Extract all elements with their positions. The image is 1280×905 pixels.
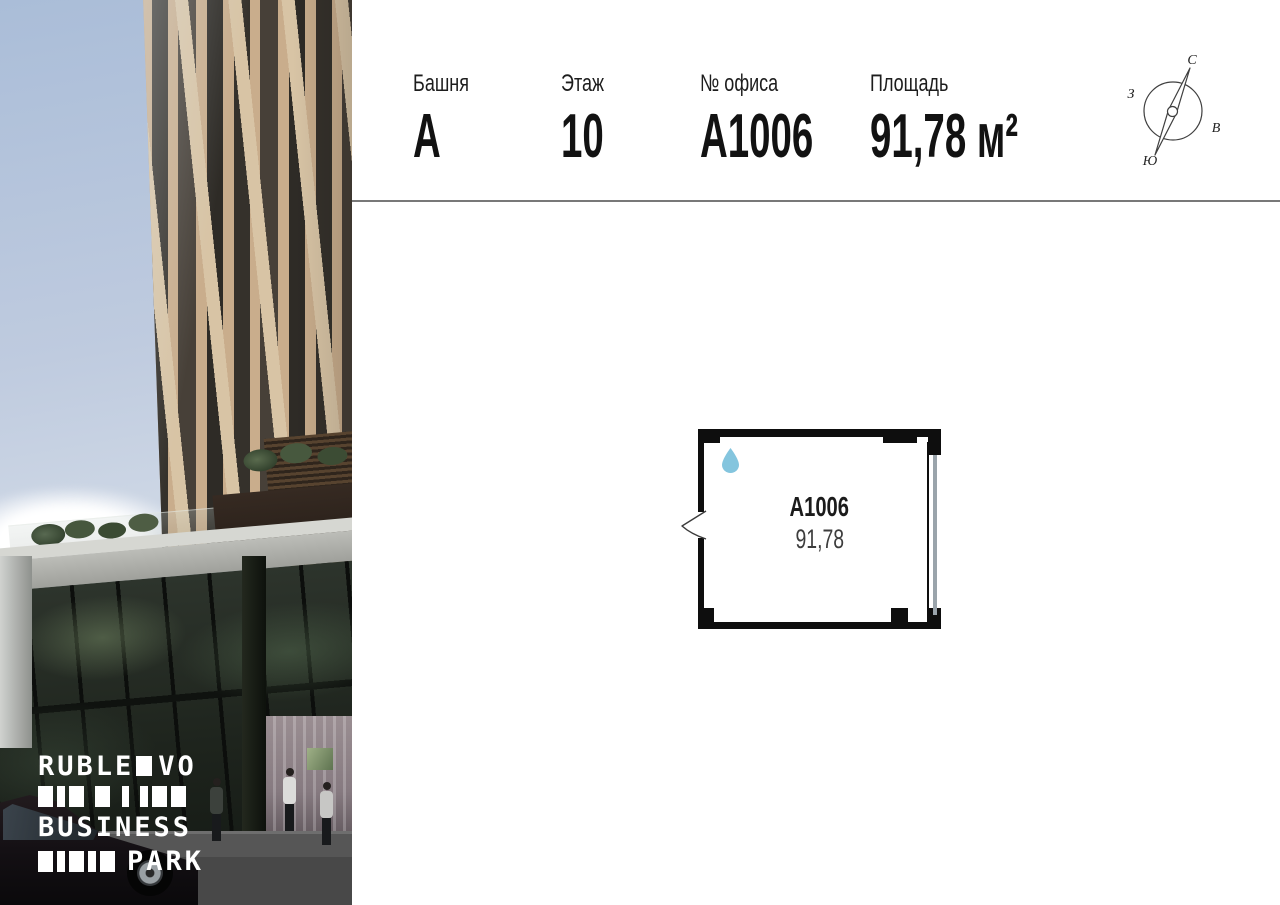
- wall-art: [307, 748, 333, 770]
- lit-storefront: [263, 716, 352, 842]
- logo-line-rublevo: RUBLE VO: [38, 753, 220, 780]
- compass-west-label: З: [1128, 87, 1135, 102]
- rublevo-business-park-logo: RUBLE VO BUSINESS PARK: [38, 753, 220, 875]
- wall-top-pilaster: [883, 437, 917, 443]
- compass-hub: [1168, 107, 1178, 117]
- spec-label: Башня: [413, 70, 469, 98]
- plan-unit-label: А1006: [790, 493, 849, 521]
- compass-south-label: Ю: [1142, 154, 1158, 169]
- divider-line: [352, 200, 1280, 202]
- logo-text: VO: [158, 753, 197, 780]
- spec-value: А1006: [700, 106, 813, 168]
- logo-block-icon: [136, 756, 152, 776]
- compass-rose: С З В Ю: [1118, 50, 1230, 172]
- logo-line-business: BUSINESS: [38, 814, 220, 841]
- corner-column: [242, 556, 266, 842]
- water-drop-icon: [722, 448, 739, 473]
- wall-top: [698, 429, 941, 437]
- logo-text: PARK: [127, 848, 204, 875]
- logo-text: BUSINESS: [38, 814, 192, 841]
- spec-value: 91,78 м²: [870, 106, 1018, 168]
- compass-north-label: С: [1187, 53, 1197, 68]
- building-photo: RUBLE VO BUSINESS PARK: [0, 0, 352, 905]
- pedestrian: [320, 782, 333, 845]
- logo-line-park: PARK: [38, 848, 220, 875]
- spec-label: Этаж: [561, 70, 604, 98]
- spec-label: № офиса: [700, 70, 778, 98]
- logo-text: RUBLE: [38, 753, 134, 780]
- logo-barcode-icon: [38, 786, 220, 807]
- spec-value: А: [413, 106, 441, 168]
- floor-plan: А1006 91,78: [698, 429, 941, 629]
- wall-bottom: [698, 622, 941, 629]
- pedestrian: [283, 768, 296, 831]
- wall-bottom-pilaster: [891, 608, 908, 622]
- logo-barcode-icon: [38, 851, 115, 872]
- light-pillar: [0, 556, 32, 748]
- spec-label: Площадь: [870, 70, 948, 98]
- compass-east-label: В: [1212, 121, 1221, 136]
- corner-top-right: [928, 429, 941, 455]
- plan-area-label: 91,78: [795, 526, 844, 553]
- spec-value: 10: [561, 106, 604, 168]
